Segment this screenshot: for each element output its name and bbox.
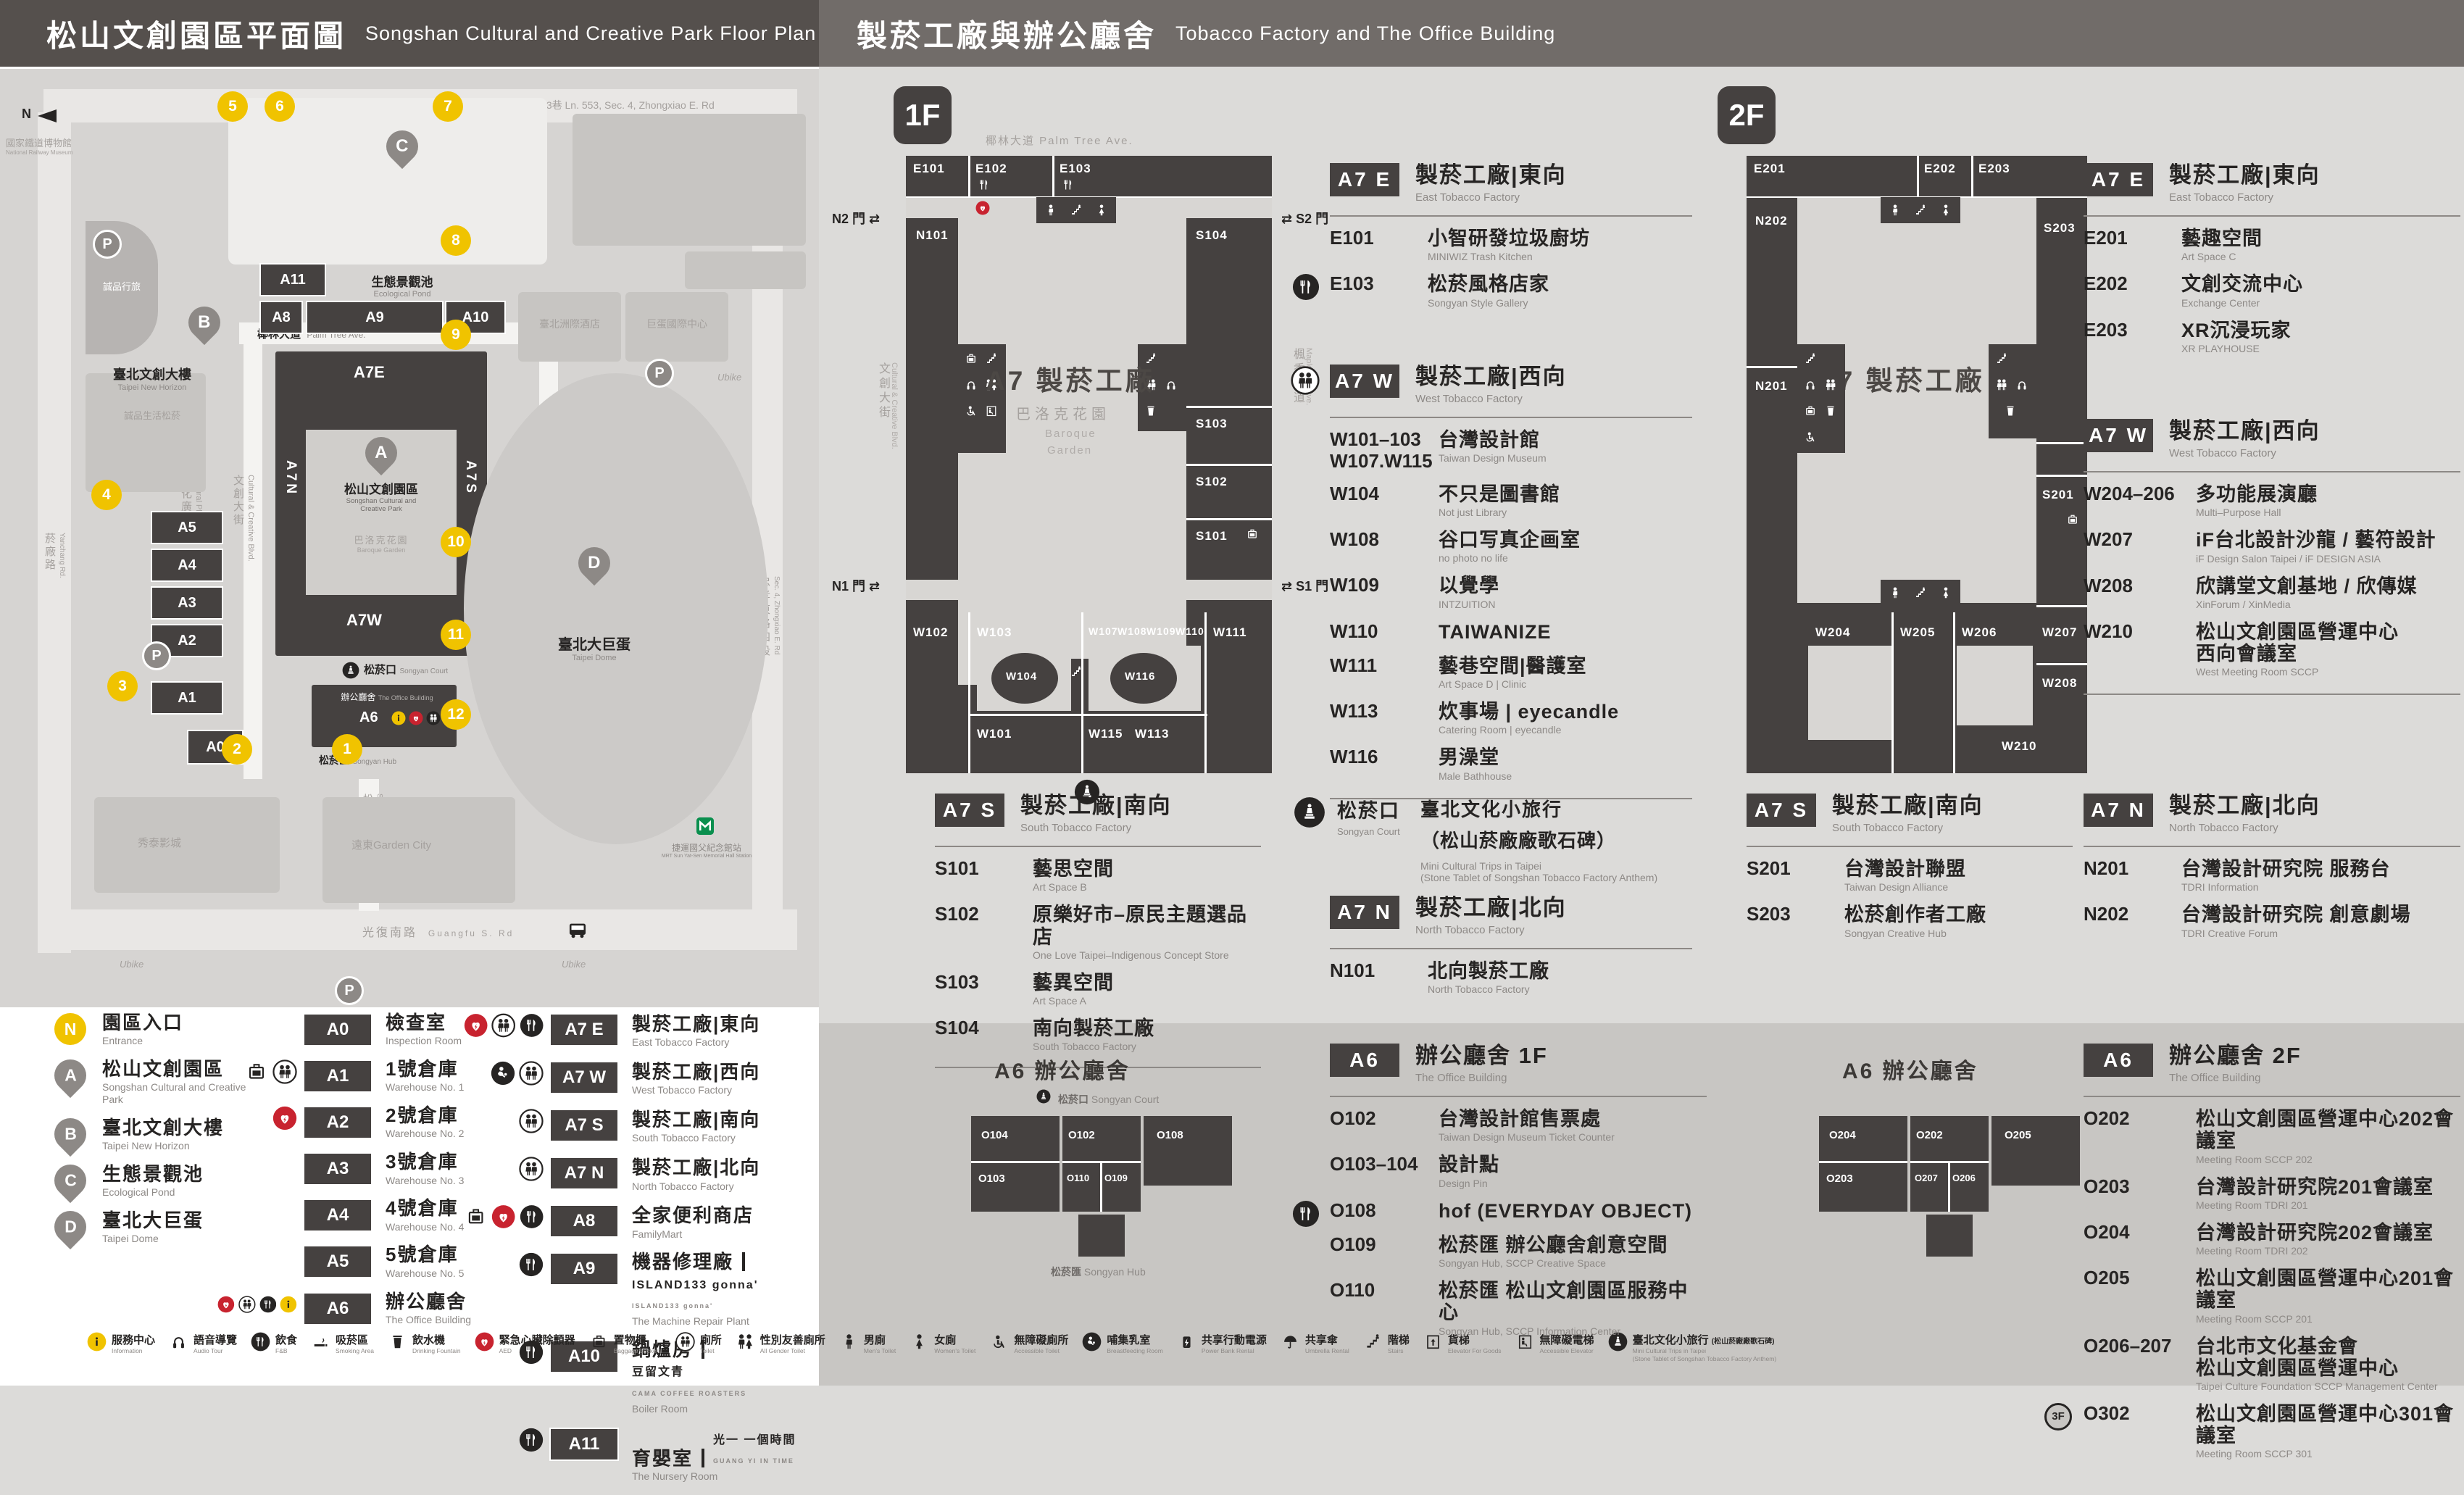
metro-icon: [694, 815, 716, 837]
aed-icon: [975, 201, 990, 215]
legend-col3: A7 E 製菸工廠|東向 East Tobacco Factory A7 W 製…: [464, 1013, 819, 1495]
statue-icon: [1294, 796, 1325, 828]
entrance-6: 6: [265, 91, 295, 122]
toilet-icon: [519, 1109, 544, 1133]
pin-b: B: [182, 300, 227, 345]
locker-icon: [1803, 404, 1818, 418]
room-row: O205 松山文創園區營運中心201會議室Meeting Room SCCP 2…: [2084, 1267, 2460, 1324]
songyan-court-statue-icon: [342, 662, 359, 679]
locker-icon: [964, 351, 978, 366]
room-row: W110 TAIWANIZE: [1330, 621, 1692, 644]
map-block-a4: A4: [151, 549, 223, 582]
section-a7n-2f: A7 N 製菸工廠|北向North Tobacco Factory N201 台…: [2084, 794, 2460, 939]
section-a7n-1f: A7 N 製菸工廠|北向North Tobacco Factory N101 北…: [1330, 896, 1692, 995]
fnb-icon: [1292, 273, 1320, 301]
header-right: 製菸工廠與辦公廳舍 Tobacco Factory and The Office…: [819, 0, 2464, 67]
floor-plan-poster: { "header":{ "zh_left":"松山文創園區平面圖","en_l…: [0, 0, 2464, 1386]
parking-icon: P: [93, 230, 122, 259]
eslite-hotel-label: 誠品行旅: [87, 279, 157, 293]
breastfeeding-icon: [491, 1061, 515, 1086]
street-cc-blvd-en: Cultural & Creative Blvd.: [890, 362, 899, 449]
legend-item: A8 全家便利商店 FamilyMart: [464, 1204, 819, 1240]
toilet-icon: [272, 1059, 297, 1084]
facility-item: 置物櫃 Baggage Lockers: [589, 1332, 662, 1355]
stairs-icon: [1913, 203, 1928, 217]
entrance-11: 11: [441, 620, 471, 650]
room-row: W210 松山文創園區營運中心西向會議室West Meeting Room SC…: [2084, 621, 2460, 678]
room-row: 3F O302 松山文創園區營運中心301會議室Meeting Room SCC…: [2084, 1403, 2460, 1459]
metro-icon: [694, 815, 716, 837]
room-row: O103–104 設計點Design Pin: [1330, 1154, 1707, 1188]
block-intercontinental: 臺北洲際酒店: [518, 292, 621, 362]
toilet-icon: [491, 1013, 515, 1038]
park-map: 忠孝東路四段553巷 Ln. 553, Sec. 4, Zhongxiao E.…: [0, 69, 819, 1007]
locker-icon: [464, 1204, 488, 1229]
wheelchair-icon: [989, 1332, 1009, 1352]
section-a7w-2f: A7 W 製菸工廠|西向West Tobacco Factory W204–20…: [2084, 419, 2460, 695]
room-row: O108 hof (EVERYDAY OBJECT): [1330, 1200, 1707, 1223]
room-row: W109 以覺學INTZUITION: [1330, 575, 1692, 609]
block-dome-intl: 巨蛋國際中心: [625, 292, 728, 362]
audio-icon: [2015, 378, 2029, 392]
room-row: W204–206 多功能展演廳Multi–Purpose Hall: [2084, 483, 2460, 518]
umbrella-icon: [1281, 1332, 1300, 1352]
facility-item: 哺集乳室 Breastfeeding Room: [1082, 1332, 1163, 1355]
section-badge: A7 W: [1330, 365, 1399, 398]
section-badge: A6: [2084, 1044, 2153, 1077]
male-icon: [1888, 203, 1902, 217]
floor-badge-2f: 2F: [1718, 86, 1776, 144]
room-row: S203 松菸創作者工廠Songyan Creative Hub: [1747, 904, 2073, 938]
a6-2f-diagram: A6 辦公廳舍 O204 O203 O202 O207 O206 O205: [1797, 1047, 2102, 1294]
new-horizon-label: 臺北文創大樓Taipei New Horizon: [80, 365, 225, 392]
section-badge: A7 N: [1330, 896, 1399, 929]
map-block-a8: A8: [259, 301, 303, 334]
powerbank-icon: [1177, 1332, 1196, 1352]
toilet-icon: [426, 711, 441, 725]
fnb-icon: [520, 1204, 544, 1229]
breastfeeding-icon: [1082, 1332, 1102, 1352]
aed-icon: [409, 711, 423, 725]
room-row: S201 台灣設計聯盟Taiwan Design Alliance: [1747, 858, 2073, 893]
room-row: O206–207 台北市文化基金會松山文創園區營運中心Taipei Cultur…: [2084, 1336, 2460, 1392]
gate-s2: ⇄ S2 門: [1281, 209, 1328, 228]
compass-arrow-icon: [38, 109, 57, 122]
baroque-label: 巴洛克花園 Baroque Garden: [309, 533, 454, 554]
map-office-building: 辦公廳舍 The Office Building A6: [312, 685, 457, 747]
toilet-icon: [675, 1332, 695, 1352]
facility-item: 廁所 Toilet: [675, 1332, 722, 1355]
room-row: E101 小智研發垃圾廚坊MINIWIZ Trash Kitchen: [1330, 228, 1692, 262]
road-label-guangfu: 光復南路 Guangfu S. Rd: [362, 923, 514, 940]
museum-label: 國家鐵道博物館National Railway Museum: [6, 136, 93, 156]
neighbor-block-ne: [573, 114, 806, 246]
legend-item: A11 育嬰室光一 一個時間GUANG YI IN TIME The Nurse…: [464, 1428, 819, 1483]
floor-badge-1f: 1F: [894, 86, 952, 144]
female-icon: [1094, 203, 1109, 217]
room-row: N201 台灣設計研究院 服務台TDRI Information: [2084, 858, 2460, 893]
stairs-icon: [1803, 351, 1818, 366]
legend-item: A7 E 製菸工廠|東向 East Tobacco Factory: [464, 1013, 819, 1049]
entrance-9: 9: [441, 320, 471, 350]
gate-n1: N1 門 ⇄: [832, 576, 880, 595]
entrance-7: 7: [433, 91, 463, 122]
statue-icon: [1036, 1089, 1051, 1104]
pond-label: 生態景觀池Ecological Pond: [330, 272, 475, 299]
road-label-yanchang-zh: 菸廠路: [42, 533, 57, 572]
toilet-icon: [1823, 378, 1838, 392]
legend-item: A9 機器修理廠ISLAND133 gonna'ISLAND133 gonna'…: [464, 1252, 819, 1328]
male-icon: [1044, 203, 1058, 217]
map-block-a3: A3: [151, 586, 223, 620]
room-row: W116 男澡堂Male Bathhouse: [1330, 746, 1692, 781]
room-row: S102 原樂好市–原民主題選品店One Love Taipei–Indigen…: [935, 904, 1261, 960]
room-row: E201 藝趣空間Art Space C: [2084, 228, 2460, 262]
section-badge: A7 E: [1330, 163, 1399, 196]
neighbor-block-ne2: [685, 251, 806, 289]
locker-icon: [1245, 527, 1260, 541]
room-row: W113 炊事場 | eyecandleCatering Room | eyec…: [1330, 701, 1692, 736]
room-row: W108 谷口写真企画室no photo no life: [1330, 529, 1692, 564]
info-icon: [391, 711, 406, 725]
facility-legend-strip: 服務中心 Information 語音導覽 Audio Tour 飲食 F&B …: [87, 1332, 1449, 1362]
block-garden-city: 遠東Garden City: [322, 797, 515, 903]
fnb-icon: [259, 1292, 277, 1317]
room-row: W111 藝巷空間|醫護室Art Space D | Clinic: [1330, 655, 1692, 690]
acc-elevator-icon: [984, 404, 999, 418]
block-cinema: 秀泰影城: [94, 797, 280, 893]
female-icon: [1939, 586, 1953, 600]
ubike-label: Ubike: [717, 372, 741, 383]
fnb-icon: [519, 1428, 544, 1452]
bus-icon: [565, 918, 590, 943]
wheelchair-icon: [1803, 430, 1818, 444]
smoking-icon: [311, 1332, 330, 1352]
room-row: W208 欣講堂文創基地 / 欣傳媒XinForum / XinMedia: [2084, 575, 2460, 610]
map-block-a11: A11: [259, 263, 326, 296]
toilet-icon: [1994, 378, 2009, 392]
statue-icon: [1294, 796, 1325, 828]
room-row: O203 台灣設計研究院201會議室Meeting Room TDRI 201: [2084, 1176, 2460, 1211]
fnb-icon: [1292, 1200, 1320, 1228]
bus-icon: [565, 918, 590, 943]
facility-item: 飲水機 Drinking Fountain: [388, 1332, 461, 1355]
female-icon: [910, 1332, 929, 1352]
eslite-spectrum-label: 誠品生活松菸: [80, 408, 225, 422]
entrance-1: 1: [332, 734, 362, 765]
section-a7w-1f: A7 W 製菸工廠|西向West Tobacco Factory W101–10…: [1330, 365, 1692, 799]
female-icon: [1939, 203, 1953, 217]
facility-item: 飲食 F&B: [251, 1332, 297, 1355]
male-icon: [1888, 586, 1902, 600]
section-badge: A7 N: [2084, 794, 2153, 827]
toilet-icon: [1291, 366, 1320, 395]
room-row: O102 台灣設計館售票處Taiwan Design Museum Ticket…: [1330, 1108, 1707, 1143]
road-label-yanchang-en: Yanchang Rd.: [58, 533, 66, 578]
room-row: S103 藝異空間Art Space A: [935, 972, 1261, 1007]
legend-item: A7 S 製菸工廠|南向 South Tobacco Factory: [464, 1109, 819, 1144]
compass-north: N: [22, 107, 31, 122]
fountain-icon: [388, 1332, 407, 1352]
audio-icon: [964, 378, 978, 392]
aed-icon: [464, 1013, 488, 1038]
fountain-icon: [2003, 404, 2018, 418]
map-court-label: 松菸口 Songyan Court: [364, 662, 448, 677]
header-left: 松山文創園區平面圖 Songshan Cultural and Creative…: [0, 0, 819, 67]
section-a7s-2f: A7 S 製菸工廠|南向South Tobacco Factory S201 台…: [1747, 794, 2073, 939]
facility-item: 語音導覽 Audio Tour: [169, 1332, 237, 1355]
toilet-icon: [238, 1292, 256, 1317]
fnb-icon: [977, 178, 991, 192]
room-row: S101 藝思空間Art Space B: [935, 858, 1261, 893]
road-cc-blvd: [244, 344, 262, 779]
mrt-label: 捷運國父紀念館站MRT Sun Yat-Sen Memorial Hall St…: [656, 841, 757, 859]
room-row: N202 台灣設計研究院 創意劇場TDRI Creative Forum: [2084, 904, 2460, 938]
room-row: N101 北向製菸工廠North Tobacco Factory: [1330, 960, 1692, 995]
fountain-icon: [1144, 404, 1158, 418]
entrance-8: 8: [441, 225, 471, 256]
entrance-5: 5: [217, 91, 248, 122]
room-row: W207 iF台北設計沙龍 / 藝符設計iF Design Salon Taip…: [2084, 529, 2460, 564]
room-row: E103 松菸風格店家Songyan Style Gallery: [1330, 273, 1692, 308]
entrance-2: 2: [222, 734, 252, 765]
audio-icon: [169, 1332, 188, 1352]
gate-n2: N2 門 ⇄: [832, 209, 880, 228]
locker-icon: [244, 1059, 269, 1084]
map-block-a1: A1: [151, 681, 223, 715]
fountain-icon: [1823, 404, 1838, 418]
facility-item: 女廁 Women's Toilet: [910, 1332, 975, 1355]
section-badge: A6: [1330, 1044, 1399, 1077]
dome-label: 臺北大巨蛋Taipei Dome: [529, 633, 659, 662]
ubike-label: Ubike: [562, 959, 586, 970]
section-badge: A7 E: [2084, 163, 2153, 196]
entrance-3: 3: [107, 671, 138, 701]
parking-icon: P: [335, 976, 364, 1005]
aed-icon: [272, 1106, 297, 1130]
street-cc-blvd-zh: 文創大街: [874, 362, 891, 420]
road-label-ccblvd-zh: 文創大街: [230, 475, 246, 527]
toilet-icon: [519, 1157, 544, 1181]
statue-icon: [342, 662, 359, 679]
stairs-icon: [1913, 586, 1928, 600]
room-row: O109 松菸匯 辦公廳舍創意空間Songyan Hub, SCCP Creat…: [1330, 1234, 1707, 1269]
toilet-ag-icon: [736, 1332, 755, 1352]
page-title-en: Songshan Cultural and Creative Park Floo…: [365, 22, 816, 45]
section-badge: A7 W: [2084, 419, 2153, 452]
toilet-icon: [519, 1061, 544, 1086]
locker-icon: [2065, 512, 2080, 527]
section-a6-2f: A6 辦公廳舍 2FThe Office Building O202 松山文創園…: [2084, 1044, 2460, 1459]
diagram-street-top: 椰林大道 Palm Tree Ave.: [986, 133, 1133, 148]
facility-item: 男廁 Men's Toilet: [839, 1332, 896, 1355]
map-block-a5: A5: [151, 511, 223, 544]
fnb-icon: [519, 1252, 544, 1277]
wheelchair-icon: [964, 404, 978, 418]
gate-s1: ⇄ S1 門: [1281, 576, 1328, 595]
room-row: O204 台灣設計研究院202會議室Meeting Room TDRI 202: [2084, 1222, 2460, 1257]
section-title-en: Tobacco Factory and The Office Building: [1175, 22, 1555, 45]
fnb-icon: [251, 1332, 270, 1352]
section-a6-1f: A6 辦公廳舍 1FThe Office Building O102 台灣設計館…: [1330, 1044, 1707, 1337]
1f-diagram: E101 E102 E103 N101 S104 S103 S102 S101 …: [906, 156, 1272, 773]
entrance-4: 4: [91, 480, 122, 510]
section-title-zh: 製菸工廠與辦公廳舍: [857, 12, 1157, 56]
stairs-icon: [1994, 351, 2009, 366]
page-title-zh: 松山文創園區平面圖: [46, 12, 346, 56]
section-a7e-2f: A7 E 製菸工廠|東向East Tobacco Factory E201 藝趣…: [2084, 163, 2460, 354]
section-badge: A7 S: [935, 794, 1004, 827]
legend-item: A7 N 製菸工廠|北向 North Tobacco Factory: [464, 1157, 819, 1192]
audio-icon: [1164, 378, 1178, 392]
info-icon: [280, 1292, 297, 1317]
facility-item: 緊急心臟除顫器 AED: [475, 1332, 575, 1355]
ecological-pond: [228, 98, 547, 265]
info-icon: [87, 1332, 107, 1352]
taipei-dome: [464, 373, 768, 844]
2f-diagram: E201 E202 E203 N202 N201 S203 S201 A7 製菸…: [1747, 156, 2087, 773]
room-row: W101–103W107.W115 台灣設計館Taiwan Design Mus…: [1330, 429, 1692, 472]
locker-icon: [589, 1332, 609, 1352]
park-pin-label: 松山文創園區 Songshan Cultural and Creative Pa…: [309, 479, 454, 513]
fnb-icon: [1061, 178, 1075, 192]
section-badge: A7 S: [1747, 794, 1816, 827]
a6-1f-diagram: A6 辦公廳舍 松菸口 Songyan Court O104 O103 O102…: [949, 1047, 1254, 1294]
entrance-10: 10: [441, 527, 471, 557]
room-row: E203 XR沉浸玩家XR PLAYHOUSE: [2084, 320, 2460, 354]
road-label-zhongxiao-en: Sec. 4, Zhongxiao E. Rd: [773, 576, 781, 654]
legend-item: A7 W 製菸工廠|西向 West Tobacco Factory: [464, 1061, 819, 1096]
ubike-label: Ubike: [120, 959, 143, 970]
stairs-icon: [1069, 203, 1083, 217]
room-row: E202 文創交流中心Exchange Center: [2084, 273, 2460, 308]
toilet-icon: [1291, 366, 1320, 395]
section-a7e-1f: A7 E 製菸工廠|東向East Tobacco Factory E101 小智…: [1330, 163, 1692, 309]
room-row: W104 不只是圖書館Not just Library: [1330, 483, 1692, 518]
parking-icon: P: [645, 359, 674, 388]
parking-icon: P: [142, 641, 171, 670]
road-label-ccblvd-en: Cultural & Creative Blvd.: [246, 475, 255, 562]
audio-icon: [1803, 378, 1818, 392]
aed-icon: [217, 1292, 235, 1317]
map-block-a9: A9: [306, 301, 444, 334]
facility-item: 吸菸區 Smoking Area: [311, 1332, 374, 1355]
room-row: O202 松山文創園區營運中心202會議室Meeting Room SCCP 2…: [2084, 1108, 2460, 1165]
room-row: O110 松菸匯 松山文創園區服務中心Songyan Hub, SCCP Inf…: [1330, 1280, 1707, 1336]
facility-item: 共享行動電源 Power Bank Rental: [1177, 1332, 1267, 1355]
aed-icon: [491, 1204, 515, 1229]
entrance-12: 12: [441, 699, 471, 730]
aed-icon: [475, 1332, 494, 1352]
facility-item: 性別友善廁所 All Gender Toilet: [736, 1332, 825, 1355]
facility-item: 服務中心 Information: [87, 1332, 155, 1355]
section-a7s-1f: A7 S 製菸工廠|南向South Tobacco Factory S101 藝…: [935, 794, 1261, 1068]
fnb-icon: [520, 1013, 544, 1038]
male-icon: [839, 1332, 859, 1352]
facility-item: 無障礙廁所 Accessible Toilet: [989, 1332, 1068, 1355]
